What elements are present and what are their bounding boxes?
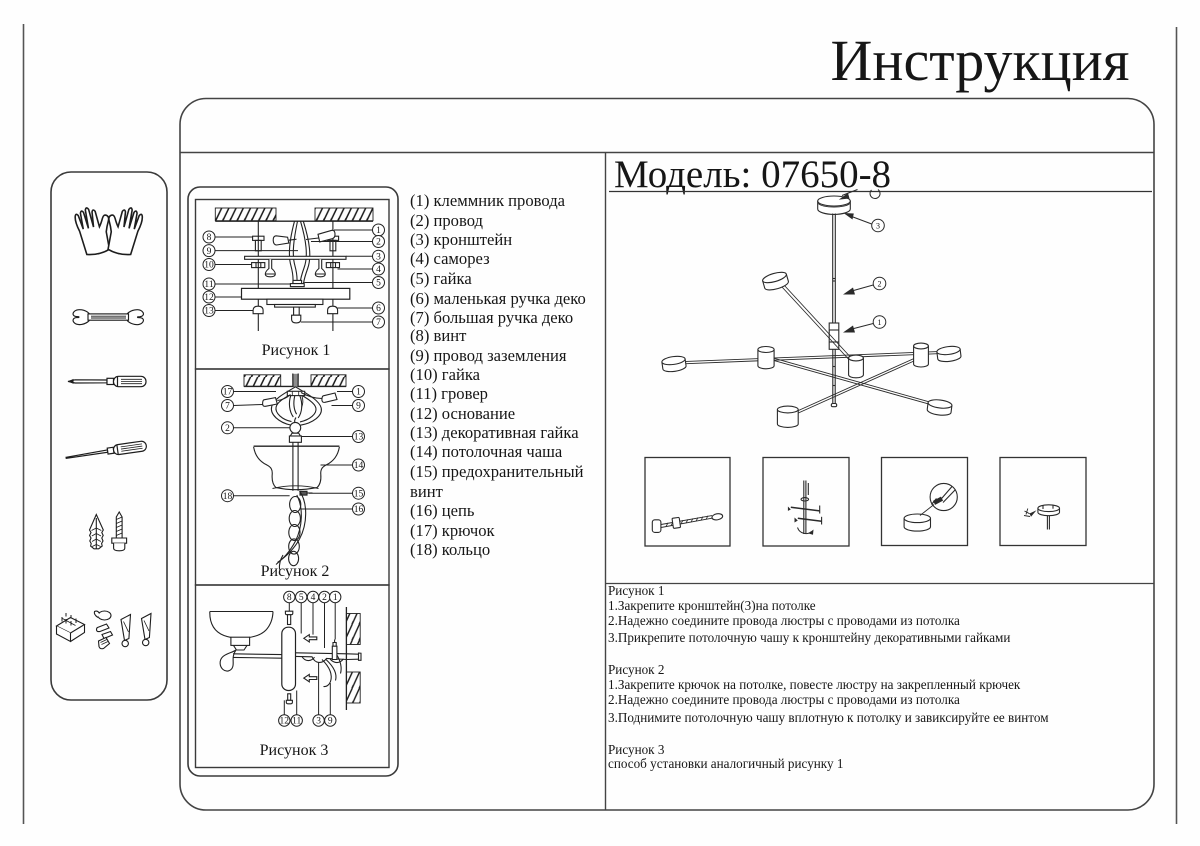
svg-text:9: 9 [328, 717, 333, 727]
svg-text:3: 3 [876, 221, 880, 230]
svg-text:2.Надежно соедините провода лю: 2.Надежно соедините провода люстры с про… [608, 613, 960, 628]
svg-text:11: 11 [204, 280, 213, 290]
svg-text:Рисунок 2: Рисунок 2 [608, 662, 664, 677]
svg-text:15: 15 [354, 489, 364, 499]
svg-text:Рисунок 1: Рисунок 1 [262, 342, 331, 359]
svg-text:2: 2 [225, 424, 230, 434]
svg-text:7: 7 [225, 402, 230, 412]
svg-text:5: 5 [299, 593, 304, 603]
svg-text:3: 3 [376, 252, 381, 262]
svg-text:(16) цепь: (16) цепь [410, 501, 475, 520]
svg-text:1: 1 [333, 593, 338, 603]
svg-text:Инструкция: Инструкция [831, 28, 1130, 93]
svg-text:(8) винт: (8) винт [410, 326, 467, 345]
svg-text:5: 5 [376, 279, 381, 289]
svg-text:9: 9 [356, 402, 361, 412]
svg-text:3.Прикрепите потолочную чашу к: 3.Прикрепите потолочную чашу к кронштейн… [608, 630, 1010, 645]
svg-text:1: 1 [878, 318, 882, 327]
svg-text:(7) большая ручка деко: (7) большая ручка деко [410, 308, 573, 327]
svg-text:(12) основание: (12) основание [410, 404, 515, 423]
svg-text:Рисунок 3: Рисунок 3 [608, 742, 665, 757]
svg-text:1.Закрепите крючок на потолке,: 1.Закрепите крючок на потолке, повесте л… [608, 677, 1021, 692]
svg-text:6: 6 [376, 304, 381, 314]
svg-text:2: 2 [878, 279, 882, 288]
svg-text:(14) потолочная чаша: (14) потолочная чаша [410, 442, 563, 461]
svg-text:2.Надежно соедините провода лю: 2.Надежно соедините провода люстры с про… [608, 692, 960, 707]
svg-text:13: 13 [204, 307, 214, 317]
svg-text:(5) гайка: (5) гайка [410, 269, 472, 288]
svg-text:14: 14 [354, 461, 364, 471]
svg-text:(15) предохранительный: (15) предохранительный [410, 462, 584, 481]
svg-text:(2) провод: (2) провод [410, 211, 484, 230]
svg-text:2: 2 [376, 238, 381, 248]
svg-text:(11) гровер: (11) гровер [410, 384, 488, 403]
svg-text:12: 12 [280, 717, 290, 727]
svg-text:1.Закрепите кронштейн(3)на пот: 1.Закрепите кронштейн(3)на потолке [608, 598, 816, 613]
svg-text:(6) маленькая ручка деко: (6) маленькая ручка деко [410, 289, 586, 308]
svg-text:7: 7 [376, 318, 381, 328]
svg-text:3: 3 [316, 717, 321, 727]
svg-text:Рисунок 1: Рисунок 1 [608, 583, 664, 598]
svg-text:2: 2 [322, 593, 327, 603]
svg-text:(4) саморез: (4) саморез [410, 249, 490, 268]
svg-text:Модель: 07650-8: Модель: 07650-8 [614, 153, 891, 196]
svg-text:10: 10 [204, 261, 214, 271]
svg-text:(3) кронштейн: (3) кронштейн [410, 230, 512, 249]
svg-text:9: 9 [207, 247, 212, 257]
svg-text:8: 8 [287, 593, 292, 603]
svg-text:(10) гайка: (10) гайка [410, 365, 481, 384]
svg-text:12: 12 [204, 293, 214, 303]
svg-text:8: 8 [207, 233, 212, 243]
svg-text:Рисунок 3: Рисунок 3 [260, 742, 329, 759]
svg-text:17: 17 [223, 388, 233, 398]
svg-text:1: 1 [376, 226, 381, 236]
svg-text:(13) декоративная гайка: (13) декоративная гайка [410, 423, 579, 442]
svg-text:винт: винт [410, 482, 444, 501]
svg-text:(17) крючок: (17) крючок [410, 521, 496, 540]
svg-text:(9) провод заземления: (9) провод заземления [410, 346, 567, 365]
svg-text:4: 4 [376, 265, 381, 275]
svg-text:11: 11 [292, 717, 301, 727]
svg-text:18: 18 [223, 492, 233, 502]
svg-text:3.Поднимите потолочную чашу вп: 3.Поднимите потолочную чашу вплотную к п… [608, 710, 1049, 725]
svg-text:4: 4 [311, 593, 316, 603]
svg-text:(18) кольцо: (18) кольцо [410, 540, 490, 559]
svg-text:(1) клеммник провода: (1) клеммник провода [410, 191, 566, 210]
svg-text:13: 13 [354, 433, 364, 443]
svg-text:16: 16 [354, 505, 364, 515]
svg-text:способ установки аналогичный р: способ установки аналогичный рисунку 1 [608, 756, 843, 771]
svg-text:1: 1 [356, 388, 361, 398]
